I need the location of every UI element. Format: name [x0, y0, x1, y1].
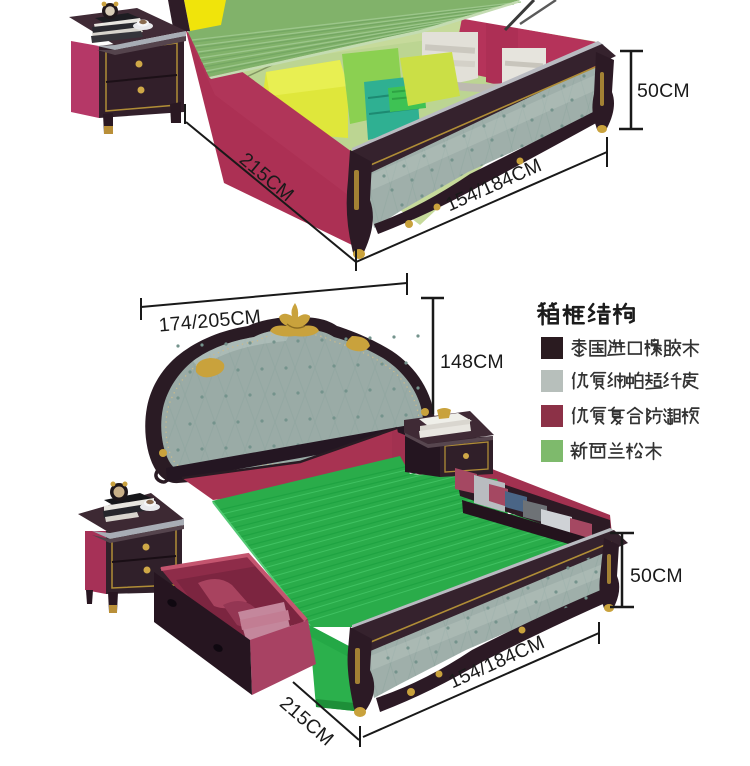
svg-text:50CM: 50CM: [630, 565, 683, 587]
svg-text:50CM: 50CM: [637, 80, 690, 102]
svg-text:148CM: 148CM: [440, 351, 504, 373]
